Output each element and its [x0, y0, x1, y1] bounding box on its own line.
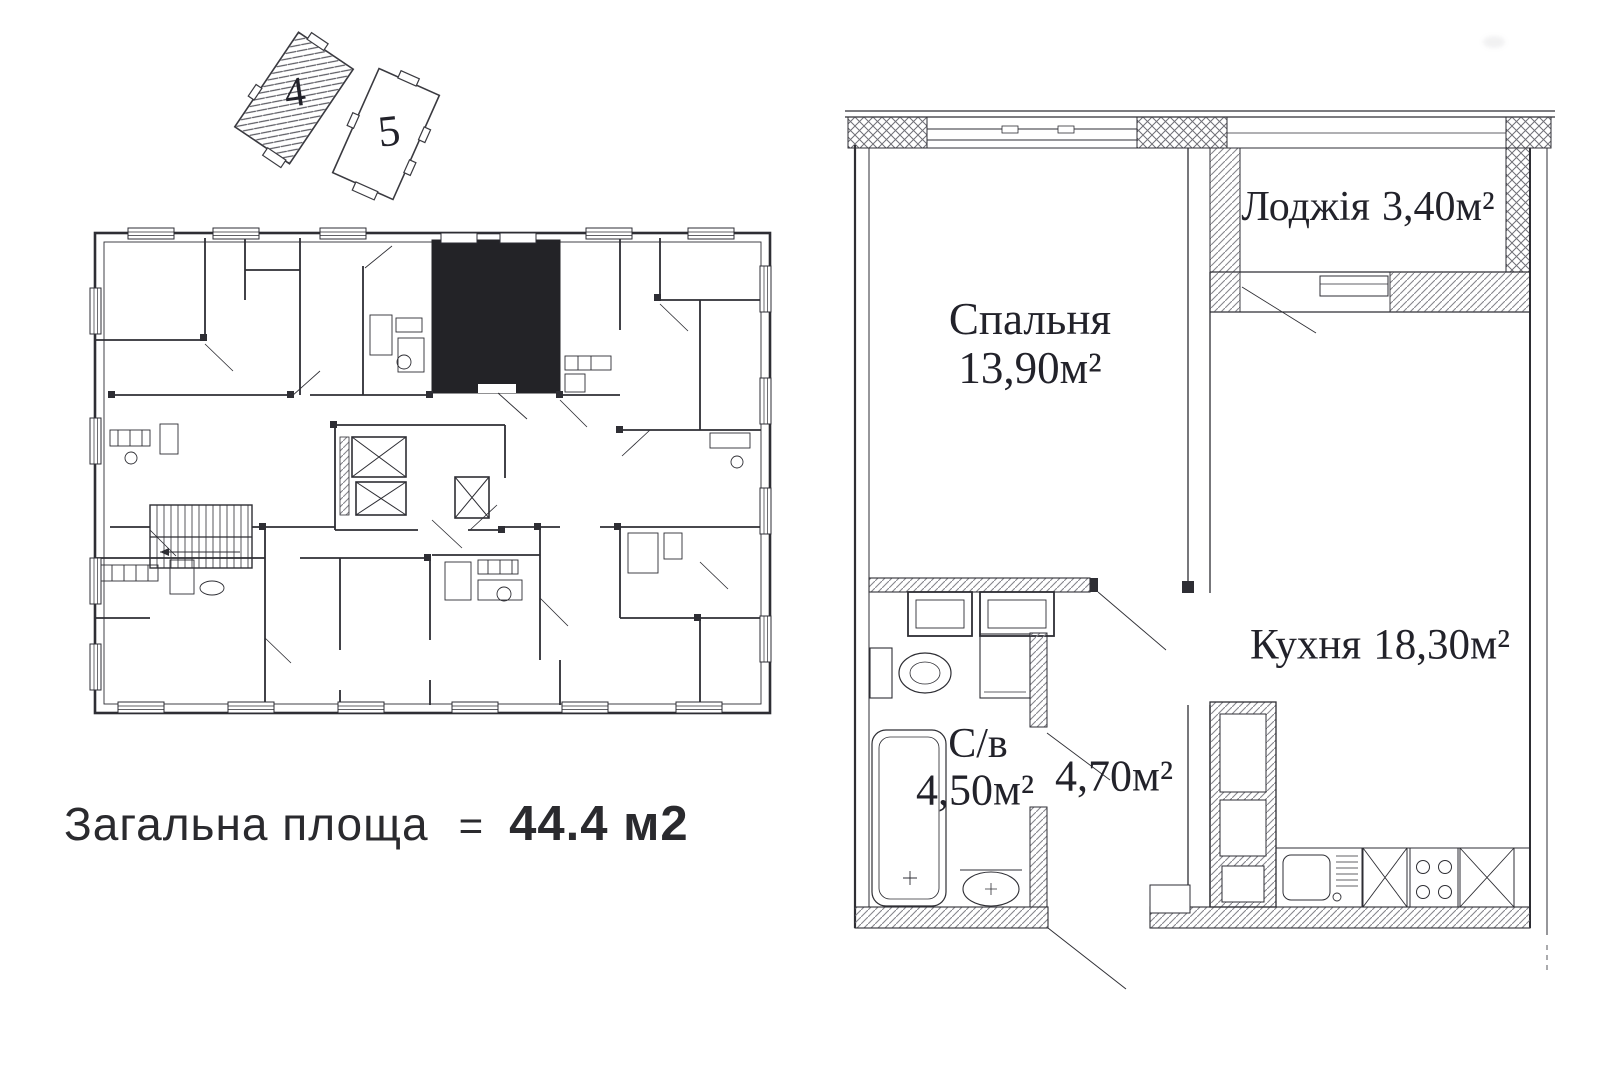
highlighted-apartment [432, 233, 560, 419]
counter-unit-right [1460, 848, 1514, 907]
exterior-top-wall [845, 111, 1555, 148]
bedroom-door-swing [1098, 592, 1166, 650]
bathroom-area-label: 4,50м² [916, 765, 1034, 816]
loggia-label: Лоджія3,40м² [1241, 183, 1494, 231]
floor-plan-overview [90, 228, 771, 713]
site-plan [225, 23, 447, 209]
elevator-core [335, 425, 505, 530]
washing-machine-fixture [980, 634, 1030, 698]
total-area-line: Загальна площа = 44.4 м2 [64, 796, 689, 852]
loggia-window [1320, 276, 1388, 296]
total-area-equals: = [459, 802, 484, 850]
bedroom-area-label: 13,90м² [958, 342, 1101, 394]
loggia-room [1210, 148, 1530, 333]
hallway-area-label: 4,70м² [1055, 751, 1173, 802]
loggia-door-swing [1242, 287, 1316, 333]
bedroom-label: Спальня [949, 293, 1111, 345]
apartment-plan [845, 111, 1555, 989]
total-area-label: Загальна площа [64, 797, 429, 851]
elevator-shaft-3 [455, 477, 489, 518]
scan-smudge [1483, 36, 1505, 48]
entry-door-swing [1048, 928, 1126, 989]
overview-walls-h [95, 270, 761, 618]
elevator-shaft-1 [352, 437, 406, 477]
overview-jambs [108, 294, 701, 621]
toilet-fixture [870, 648, 951, 698]
elevator-shaft-2 [356, 482, 406, 515]
counter-unit-left [1363, 848, 1407, 907]
kitchen-sink-fixture [1276, 848, 1362, 907]
total-area-value: 44.4 м2 [509, 796, 688, 852]
bathroom-label: С/в [948, 720, 1008, 768]
bedroom-kitchen-wall [1182, 148, 1210, 907]
kitchen-cabinet-fixture [1210, 702, 1276, 907]
plan-drawing [0, 0, 1600, 1067]
kitchen-label: Кухня18,30м² [1250, 621, 1510, 670]
stove-fixture [1410, 848, 1458, 907]
floorplan-sheet: 4 5 Лоджія3,40м² Спальня 13,90м² Кухня18… [0, 0, 1600, 1067]
bathtub-fixture [872, 730, 946, 906]
sink-fixture [960, 870, 1022, 906]
